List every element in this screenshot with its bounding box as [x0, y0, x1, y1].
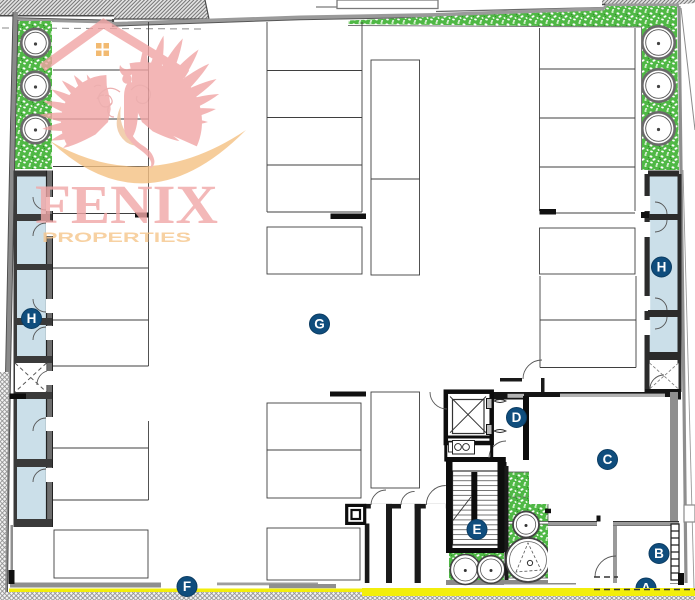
- svg-text:D: D: [512, 410, 522, 425]
- svg-text:E: E: [472, 522, 481, 537]
- svg-text:F: F: [183, 579, 191, 594]
- svg-text:B: B: [654, 546, 664, 561]
- svg-text:C: C: [603, 452, 613, 467]
- svg-text:H: H: [27, 311, 37, 326]
- svg-text:PROPERTIES: PROPERTIES: [42, 229, 191, 245]
- svg-text:G: G: [314, 317, 325, 332]
- svg-text:H: H: [657, 260, 667, 275]
- svg-text:FENIX: FENIX: [35, 174, 218, 235]
